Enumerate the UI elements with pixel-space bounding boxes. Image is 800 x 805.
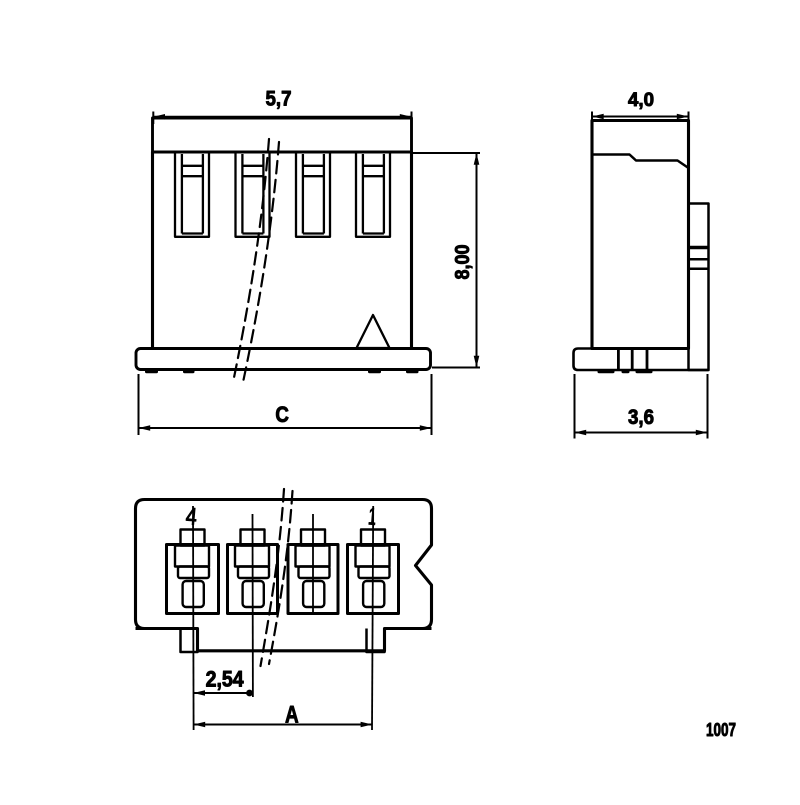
svg-text:8,00: 8,00 bbox=[451, 245, 474, 280]
svg-text:4: 4 bbox=[185, 503, 198, 531]
svg-text:5,7: 5,7 bbox=[266, 87, 292, 111]
svg-text:4,0: 4,0 bbox=[628, 90, 654, 111]
svg-text:C: C bbox=[275, 402, 289, 427]
svg-text:2,54: 2,54 bbox=[206, 667, 245, 692]
svg-text:1: 1 bbox=[367, 503, 377, 531]
svg-text:A: A bbox=[285, 702, 299, 729]
svg-text:3,6: 3,6 bbox=[628, 406, 654, 429]
svg-text:1007: 1007 bbox=[706, 719, 736, 740]
